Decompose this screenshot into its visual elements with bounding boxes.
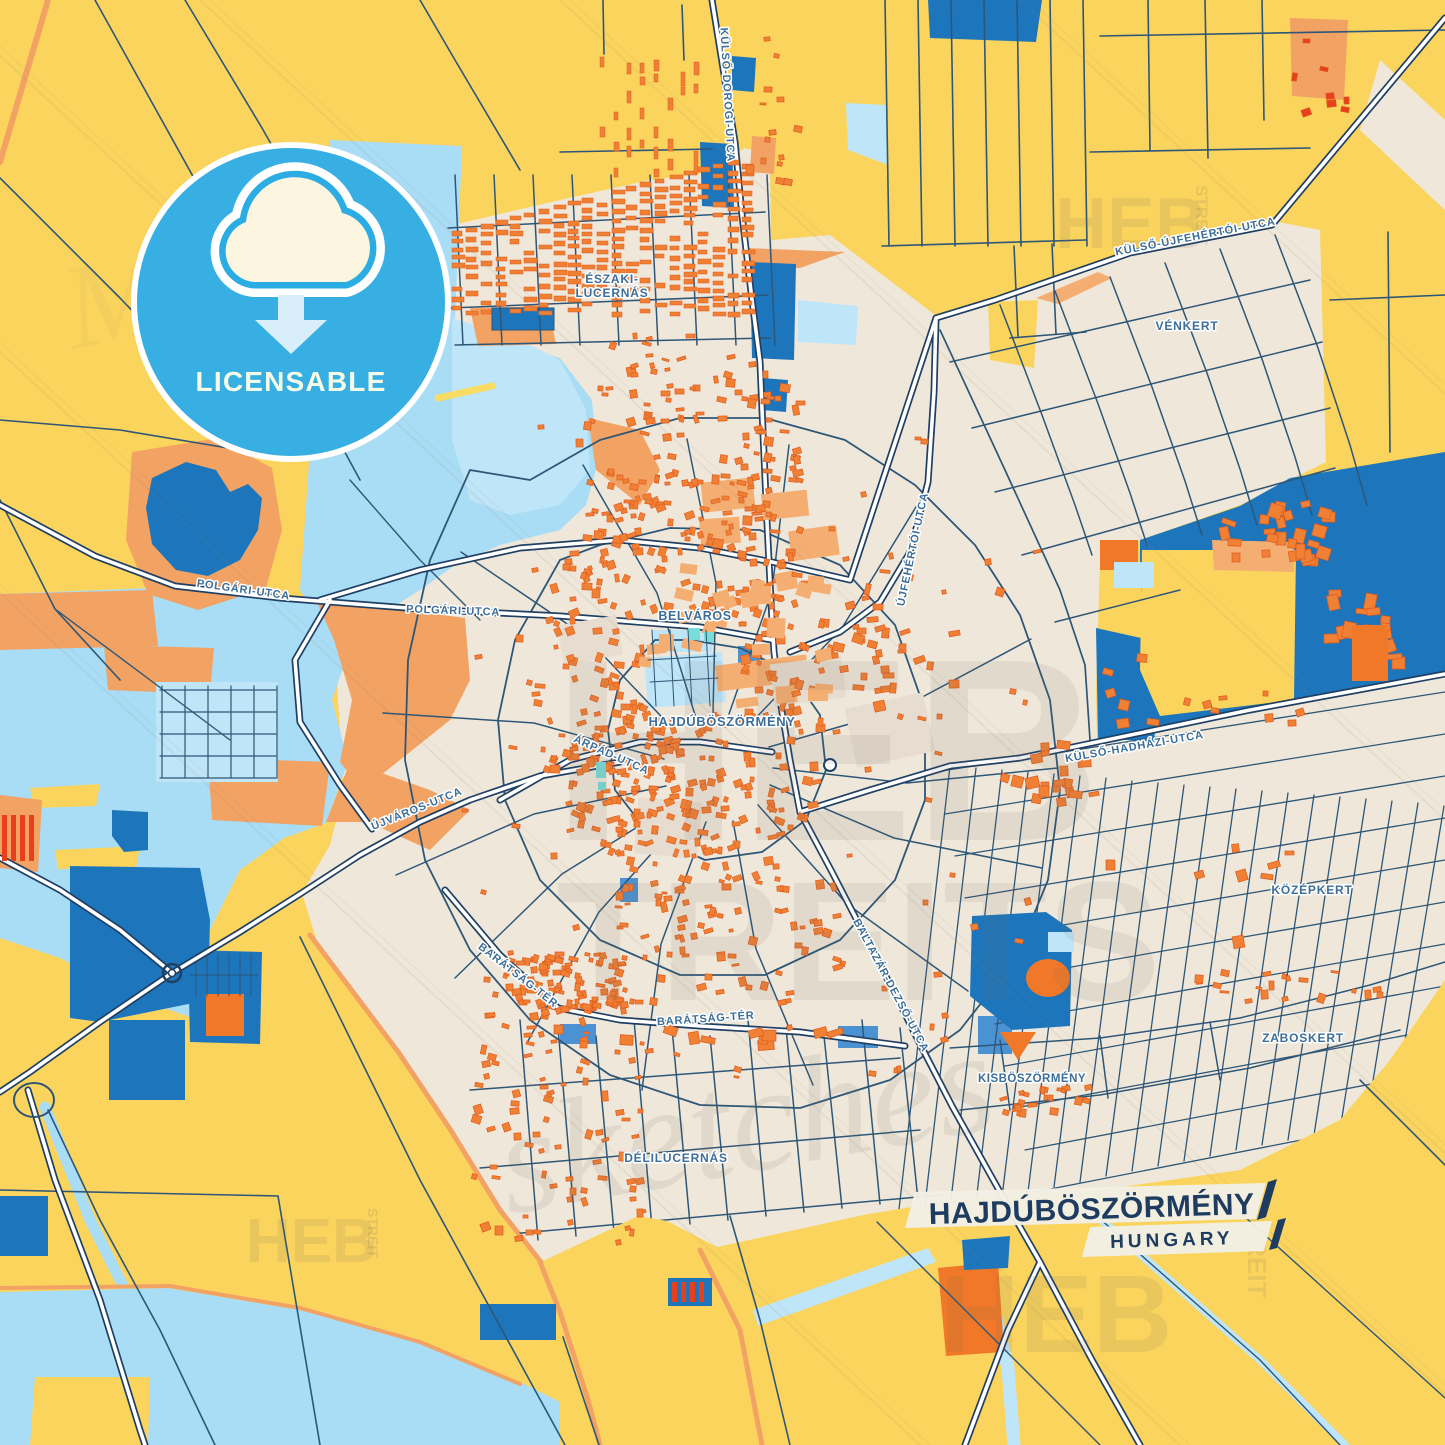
svg-text:KISBÖSZÖRMÉNY: KISBÖSZÖRMÉNY [978, 1072, 1086, 1085]
svg-text:ÉSZAKI-: ÉSZAKI- [585, 271, 639, 286]
svg-text:BELVÁROS: BELVÁROS [658, 608, 731, 623]
svg-text:HEB: HEB [246, 1207, 377, 1276]
svg-text:VÉNKERT: VÉNKERT [1156, 318, 1219, 333]
svg-text:HAJDÚBÖSZÖRMÉNY: HAJDÚBÖSZÖRMÉNY [649, 714, 796, 729]
svg-text:STREIT: STREIT [365, 1208, 381, 1258]
svg-text:HUNGARY: HUNGARY [1110, 1228, 1234, 1253]
svg-text:LUCERNÁS: LUCERNÁS [575, 285, 648, 300]
svg-text:ZABOSKERT: ZABOSKERT [1262, 1031, 1344, 1045]
svg-text:DÉLILUCERNÁS: DÉLILUCERNÁS [624, 1150, 728, 1165]
svg-text:KÖZÉPKERT: KÖZÉPKERT [1271, 882, 1352, 897]
svg-text:HEB: HEB [940, 1253, 1172, 1376]
svg-text:LICENSABLE: LICENSABLE [196, 366, 387, 397]
svg-text:TREITS: TREITS [556, 847, 1160, 1037]
